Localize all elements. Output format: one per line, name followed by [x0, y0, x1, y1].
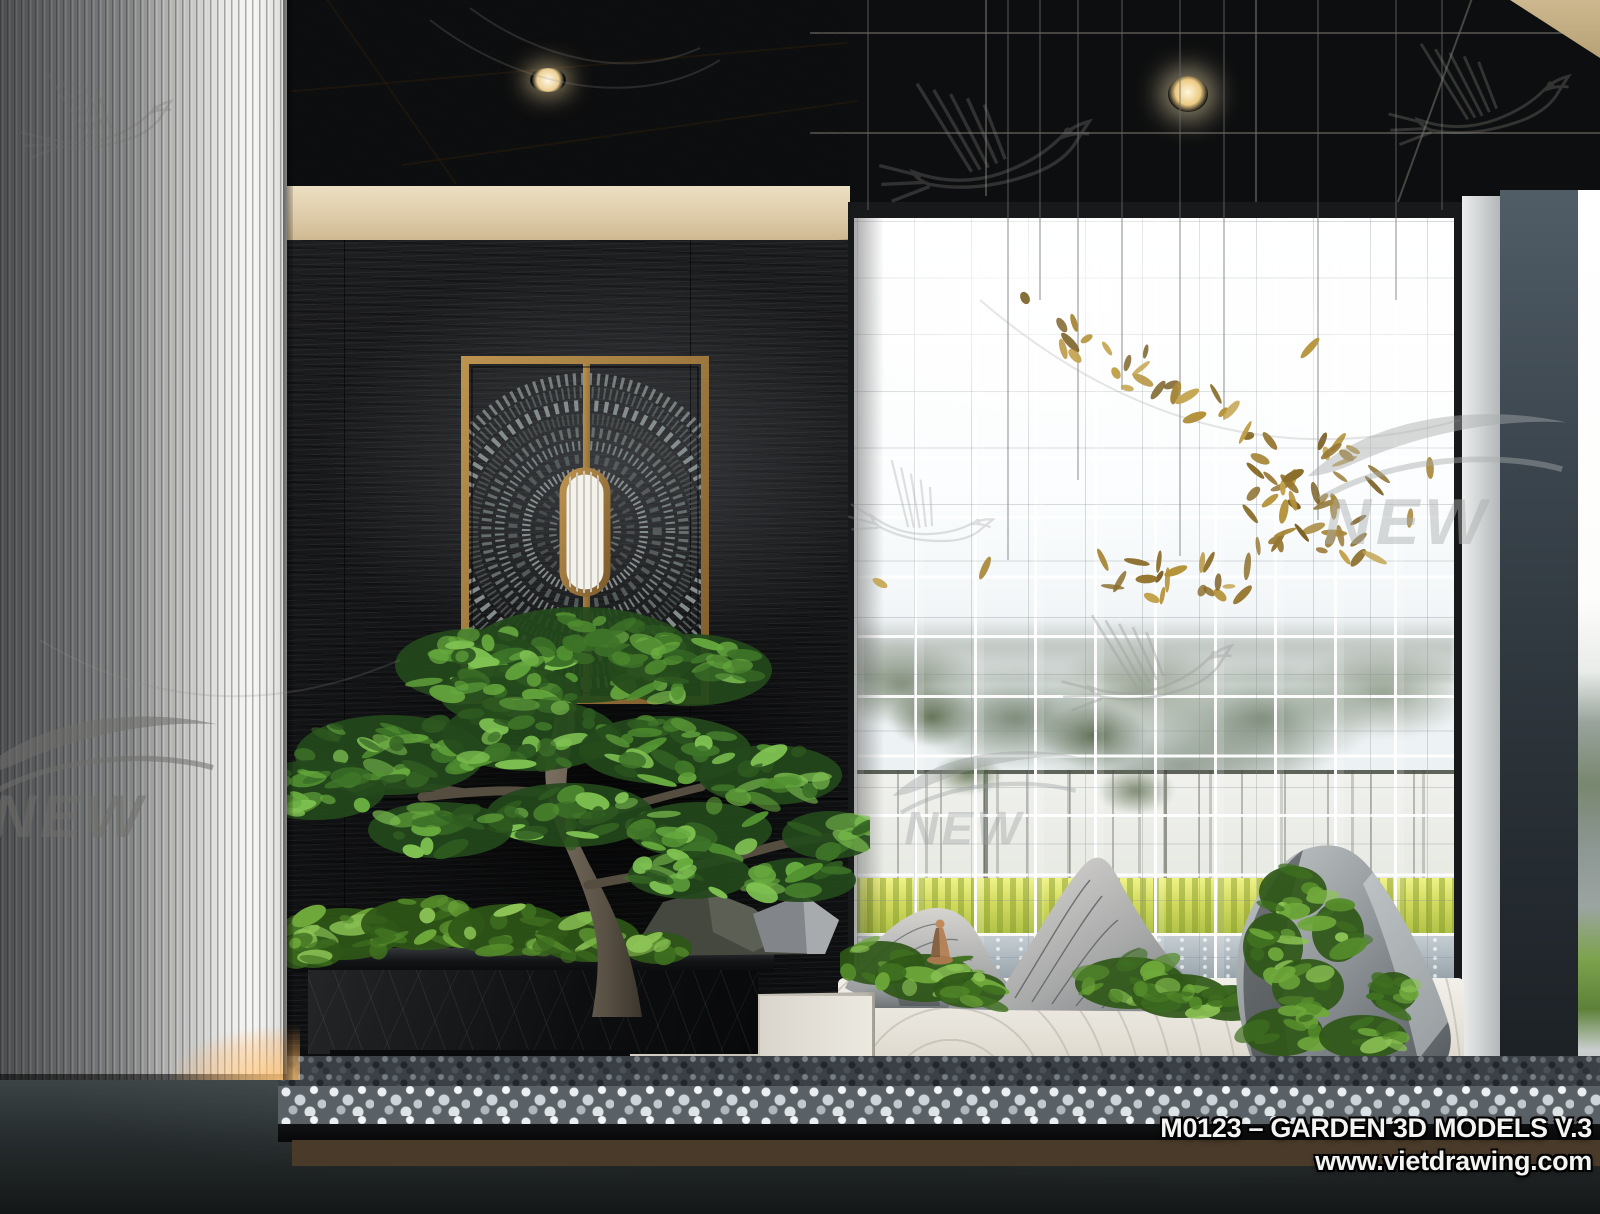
pillar-wall-gap: [283, 0, 293, 1080]
pillar-shade: [0, 0, 287, 1080]
recessed-downlight: [530, 68, 566, 92]
gold-leaf-mobile: [850, 268, 1450, 613]
watermark-caption: M0123 – GARDEN 3D MODELS V.3 www.vietdra…: [1160, 1112, 1592, 1179]
bonsai-foliage: [270, 607, 870, 907]
wood-ceiling-seam: [402, 100, 858, 166]
wood-ceiling-seam: [283, 0, 457, 184]
rendered-interior-scene: NEW NEW NEW M0123 – GARDEN 3D MODELS V.3…: [0, 0, 1600, 1214]
caption-model-line: M0123 – GARDEN 3D MODELS V.3: [1160, 1112, 1592, 1145]
ceiling-corner-wedge: [1510, 0, 1600, 58]
dark-steel-pillar: [1500, 190, 1578, 1102]
white-fluted-pillar: [0, 0, 287, 1080]
moss-covered-rock: [1213, 832, 1483, 1087]
wood-ceiling: [280, 0, 850, 186]
bonsai-tree: [270, 545, 870, 1020]
caption-website-line: www.vietdrawing.com: [1160, 1145, 1592, 1178]
base-light-glow: [170, 1026, 300, 1080]
